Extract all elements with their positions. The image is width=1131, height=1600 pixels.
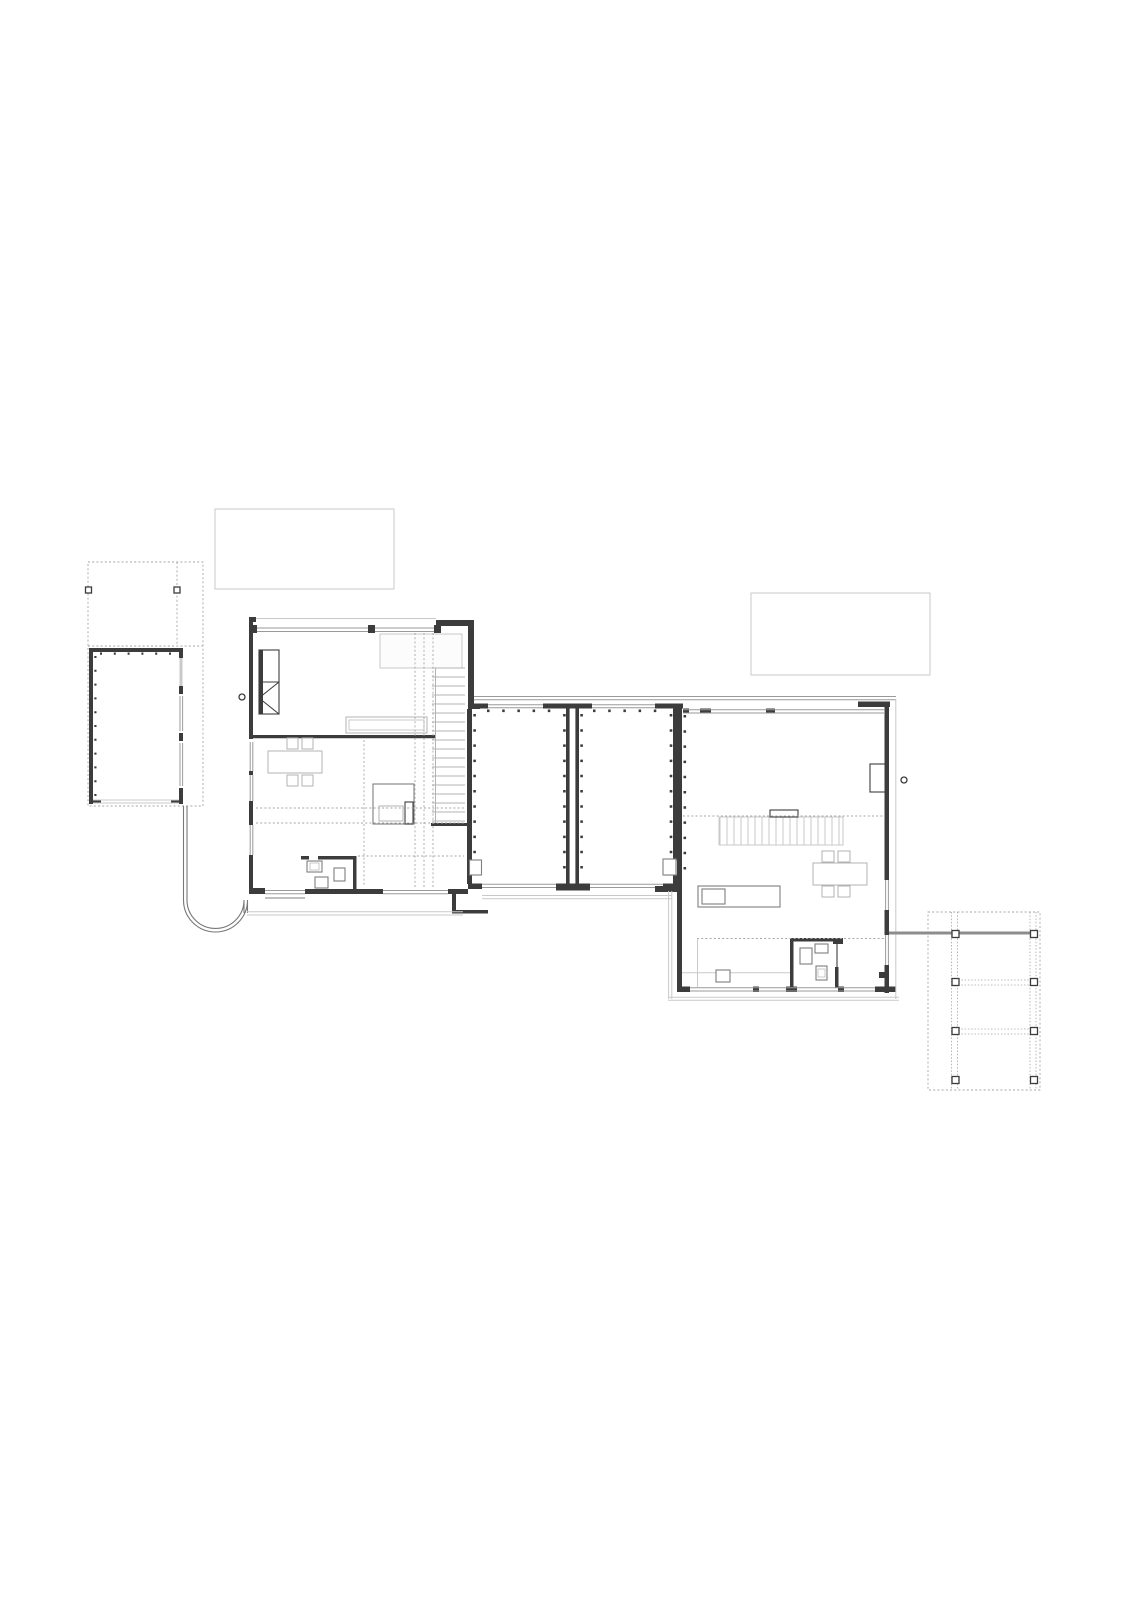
pergola-dotted-outline: [928, 912, 1040, 1090]
fireplace: [259, 650, 279, 714]
north-clerestory-glazing: [254, 628, 436, 632]
garage-door-opening: [180, 658, 183, 686]
bath-toilet: [815, 944, 828, 953]
stair-treads: [432, 668, 465, 821]
curved-garden-wall: [184, 806, 248, 932]
west-house: [239, 617, 488, 915]
dining-table: [268, 751, 322, 773]
chair: [287, 775, 298, 786]
east-house-wall-segments: [655, 702, 896, 994]
pergola-post: [1031, 931, 1038, 938]
dining-set-east: [813, 851, 867, 897]
chair: [838, 851, 850, 862]
staircase: [432, 668, 465, 823]
chair: [838, 886, 850, 897]
desk-side-unit: [405, 802, 413, 824]
decking-outline: [719, 817, 843, 845]
dining-set-west: [268, 738, 322, 786]
bathroom: [800, 944, 837, 980]
chair: [287, 738, 298, 749]
west-facade-windows: [250, 742, 253, 855]
north-roof-overhang-lines: [474, 697, 896, 700]
chair: [302, 738, 313, 749]
chair: [822, 851, 834, 862]
bath-shower: [800, 948, 812, 964]
door-handle-circle-east: [901, 777, 907, 783]
link-stud-ticks: [475, 714, 671, 880]
pergola-post: [952, 1028, 959, 1035]
pergola-dotted-grid: [952, 912, 1037, 1090]
dining-table: [813, 863, 867, 885]
desk-group: [373, 784, 414, 824]
garden-wall-outer: [184, 806, 248, 932]
planter-west: [663, 859, 676, 875]
storage-area: [682, 939, 790, 988]
wc-room: [307, 861, 345, 888]
east-house-roof-overhang-lines: [668, 699, 899, 1000]
kitchen-island: [698, 886, 780, 907]
pergola-post: [1031, 1028, 1038, 1035]
carport-post: [86, 587, 92, 593]
carport-left: [86, 562, 204, 806]
garage-south-door-line: [93, 800, 179, 803]
carport-dotted-outline: [88, 562, 203, 806]
south-facade-glazing-east: [690, 988, 875, 991]
storage-fixture: [716, 970, 730, 982]
floor-plan-canvas: [0, 0, 1131, 1600]
pergola-right: [889, 912, 1040, 1090]
roof-rectangle-upper-right: [751, 593, 930, 675]
island-sink: [702, 889, 725, 904]
garden-wall-inner: [187, 806, 244, 928]
pergola-post: [1031, 1077, 1038, 1084]
pergola-post: [1031, 979, 1038, 986]
south-entry-steps: [247, 912, 463, 915]
floor-plan-drawing: [0, 0, 1131, 1600]
section-reference-lines: [256, 633, 464, 888]
carport-dotted-grid: [88, 562, 203, 646]
chair: [302, 775, 313, 786]
wall-closet: [870, 764, 887, 792]
storage-partition-lines: [682, 939, 790, 988]
wc-fixture: [315, 877, 328, 888]
wc-sink: [334, 868, 345, 881]
pergola-beam: [889, 932, 1035, 935]
link-wall-segments: [468, 704, 683, 891]
decking-boards: [720, 817, 839, 845]
link-south-step-lines: [482, 896, 672, 899]
chair: [822, 886, 834, 897]
decking: [719, 810, 843, 845]
east-house: [655, 699, 907, 1000]
carport-post: [174, 587, 180, 593]
pergola-post: [952, 979, 959, 986]
void-opening: [380, 634, 462, 668]
garage-wall-segments: [89, 648, 183, 804]
door-handle-circle-west: [239, 694, 245, 700]
pergola-post: [952, 1077, 959, 1084]
garage: [89, 648, 183, 804]
counter-inner: [349, 720, 424, 730]
pergola-post: [952, 931, 959, 938]
roof-rectangle-upper-left: [215, 509, 394, 589]
east-house-north-glazing: [683, 710, 884, 713]
corner-niche: [470, 860, 482, 875]
